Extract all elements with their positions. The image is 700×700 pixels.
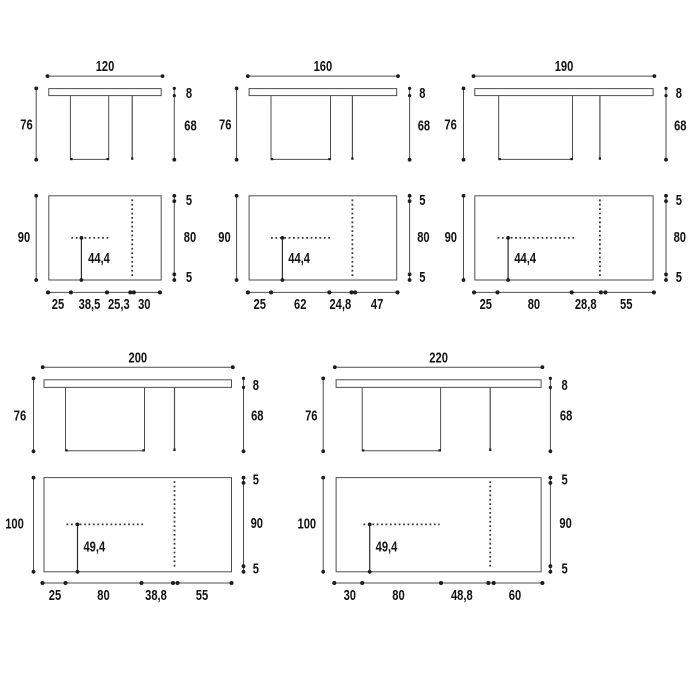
svg-text:5: 5 bbox=[186, 192, 192, 209]
svg-text:200: 200 bbox=[128, 349, 147, 366]
svg-text:68: 68 bbox=[251, 407, 263, 424]
svg-text:5: 5 bbox=[186, 268, 192, 285]
svg-text:68: 68 bbox=[184, 117, 196, 134]
svg-text:80: 80 bbox=[97, 587, 109, 604]
svg-text:220: 220 bbox=[429, 349, 448, 366]
svg-text:47: 47 bbox=[371, 295, 383, 312]
svg-text:55: 55 bbox=[620, 295, 632, 312]
svg-text:68: 68 bbox=[560, 407, 572, 424]
svg-text:90: 90 bbox=[445, 228, 457, 245]
svg-text:5: 5 bbox=[253, 471, 259, 488]
svg-text:25: 25 bbox=[480, 295, 492, 312]
svg-text:68: 68 bbox=[674, 117, 686, 134]
svg-text:44,4: 44,4 bbox=[288, 250, 310, 267]
svg-text:8: 8 bbox=[186, 85, 192, 102]
svg-text:5: 5 bbox=[561, 560, 567, 577]
svg-text:68: 68 bbox=[418, 117, 430, 134]
svg-text:80: 80 bbox=[674, 229, 686, 246]
svg-text:44,4: 44,4 bbox=[514, 250, 536, 267]
svg-text:90: 90 bbox=[251, 514, 263, 531]
svg-text:25: 25 bbox=[253, 295, 265, 312]
svg-text:5: 5 bbox=[676, 268, 682, 285]
svg-text:60: 60 bbox=[509, 587, 521, 604]
svg-text:5: 5 bbox=[253, 560, 259, 577]
svg-text:25: 25 bbox=[49, 587, 61, 604]
svg-text:90: 90 bbox=[559, 514, 571, 531]
svg-text:62: 62 bbox=[294, 295, 306, 312]
svg-text:90: 90 bbox=[18, 228, 30, 245]
svg-text:24,8: 24,8 bbox=[329, 295, 351, 312]
svg-text:44,4: 44,4 bbox=[88, 250, 110, 267]
svg-text:100: 100 bbox=[5, 515, 24, 532]
svg-text:38,5: 38,5 bbox=[79, 295, 101, 312]
svg-text:8: 8 bbox=[419, 85, 425, 102]
svg-text:55: 55 bbox=[196, 587, 208, 604]
svg-text:5: 5 bbox=[561, 471, 567, 488]
svg-text:76: 76 bbox=[20, 116, 32, 133]
svg-text:48,8: 48,8 bbox=[451, 587, 473, 604]
svg-text:80: 80 bbox=[184, 229, 196, 246]
svg-text:90: 90 bbox=[218, 228, 230, 245]
svg-text:76: 76 bbox=[444, 116, 456, 133]
svg-text:76: 76 bbox=[305, 407, 317, 424]
svg-text:5: 5 bbox=[419, 192, 425, 209]
svg-text:5: 5 bbox=[676, 192, 682, 209]
svg-text:8: 8 bbox=[561, 377, 567, 394]
svg-text:100: 100 bbox=[297, 515, 316, 532]
svg-text:8: 8 bbox=[676, 85, 682, 102]
svg-text:76: 76 bbox=[219, 116, 231, 133]
svg-text:80: 80 bbox=[417, 229, 429, 246]
svg-text:25: 25 bbox=[52, 295, 64, 312]
svg-text:190: 190 bbox=[555, 58, 574, 75]
svg-text:5: 5 bbox=[419, 268, 425, 285]
svg-text:8: 8 bbox=[253, 377, 259, 394]
svg-text:76: 76 bbox=[14, 407, 26, 424]
svg-text:49,4: 49,4 bbox=[83, 538, 105, 555]
svg-text:30: 30 bbox=[344, 587, 356, 604]
svg-text:30: 30 bbox=[138, 295, 150, 312]
svg-text:28,8: 28,8 bbox=[575, 295, 597, 312]
svg-text:80: 80 bbox=[392, 587, 404, 604]
svg-text:120: 120 bbox=[96, 58, 115, 75]
svg-text:38,8: 38,8 bbox=[145, 587, 167, 604]
svg-text:80: 80 bbox=[528, 295, 540, 312]
svg-text:160: 160 bbox=[314, 58, 333, 75]
svg-text:25,3: 25,3 bbox=[108, 295, 130, 312]
svg-text:49,4: 49,4 bbox=[376, 538, 398, 555]
